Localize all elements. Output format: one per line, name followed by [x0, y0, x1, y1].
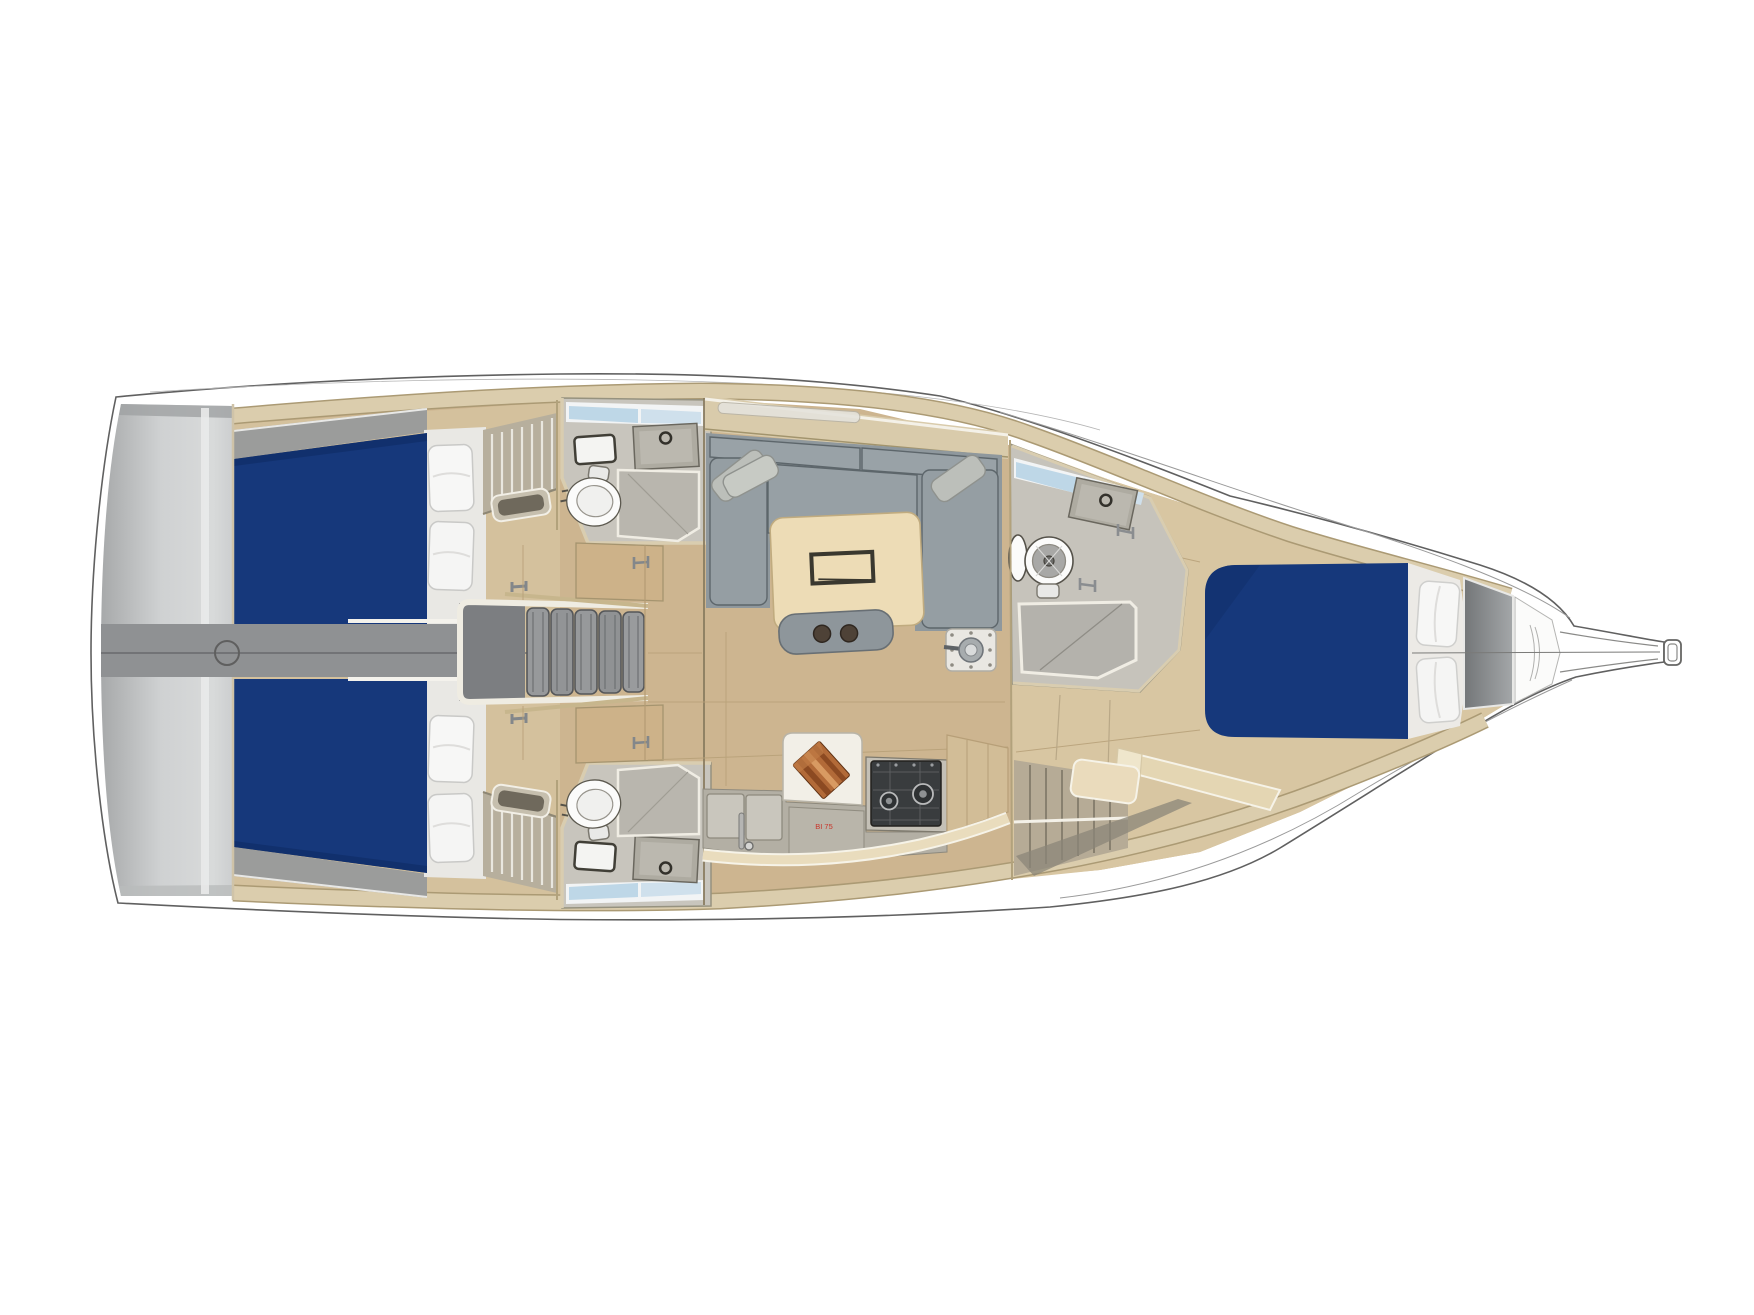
svg-text:BI 75: BI 75 [815, 822, 833, 831]
